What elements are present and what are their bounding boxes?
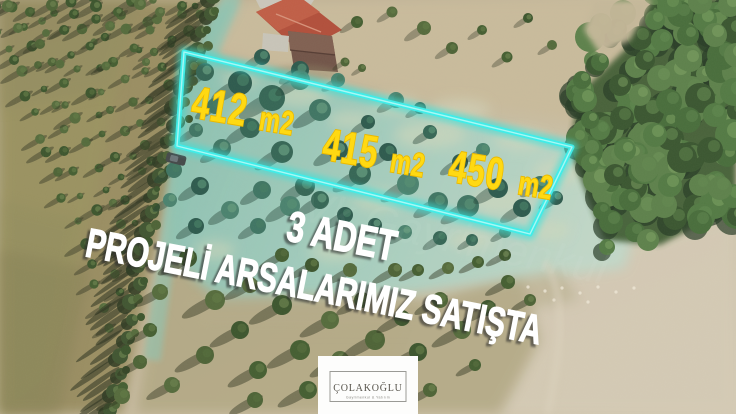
svg-text:Gayrimenkul & Yatırım: Gayrimenkul & Yatırım bbox=[346, 396, 390, 400]
svg-text:450: 450 bbox=[445, 142, 508, 200]
svg-text:m2: m2 bbox=[257, 101, 297, 143]
svg-text:412: 412 bbox=[188, 78, 251, 136]
svg-text:ÇOLAKOĞLU: ÇOLAKOĞLU bbox=[333, 382, 402, 394]
svg-text:m2: m2 bbox=[516, 165, 556, 207]
svg-text:415: 415 bbox=[319, 120, 382, 178]
svg-text:m2: m2 bbox=[388, 143, 428, 185]
